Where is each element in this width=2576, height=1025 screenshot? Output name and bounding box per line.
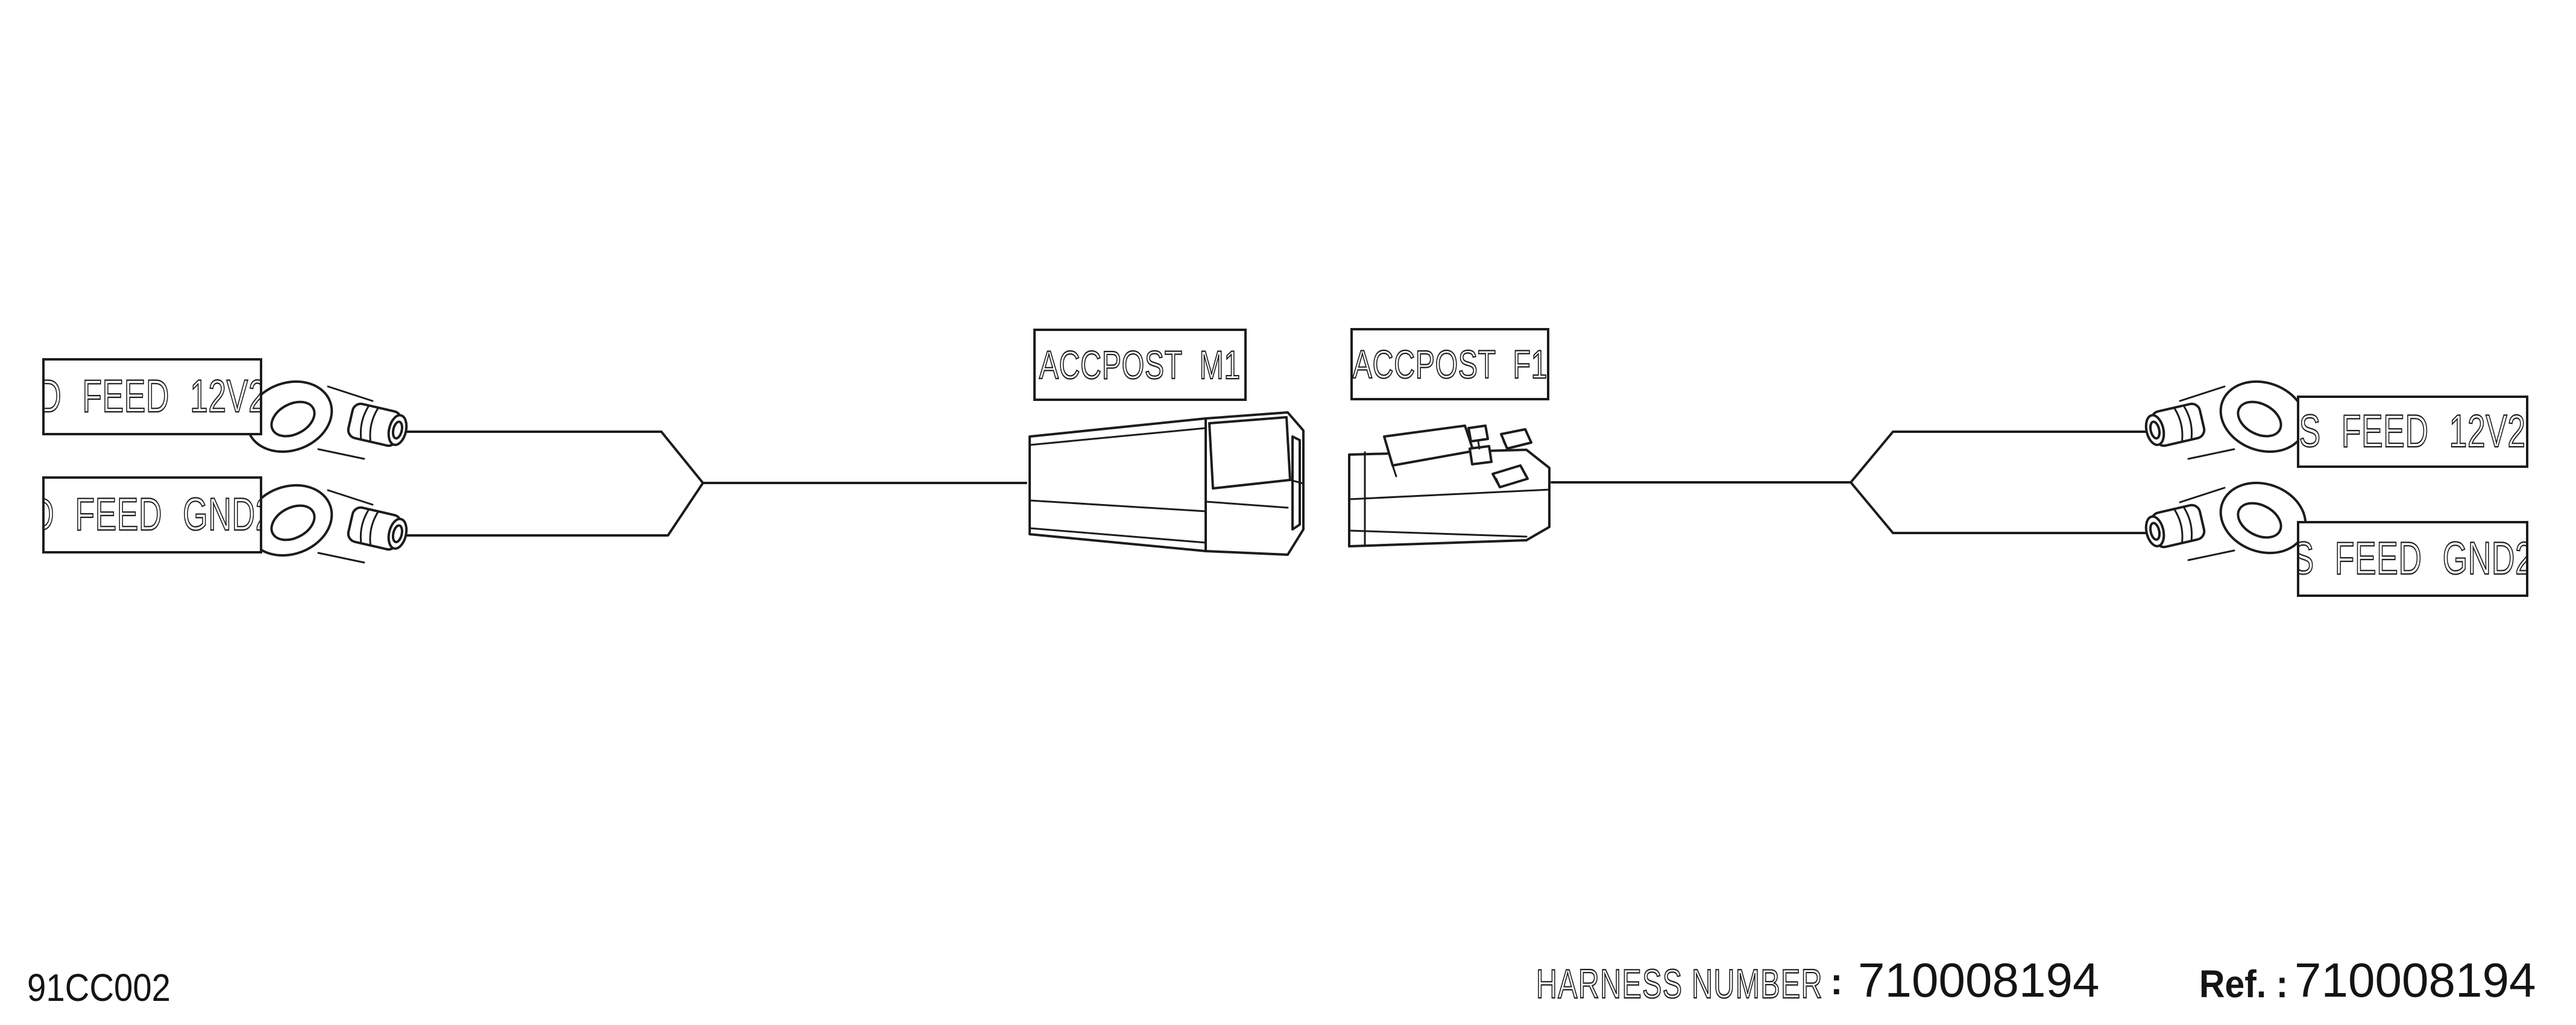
ring-terminal-d-feed-gnd2 [237, 474, 409, 567]
label-d-feed-12v2-text: D FEED 12V2 [42, 374, 262, 420]
label-box-accpost-f1: ACCPOST F1 [1350, 328, 1549, 400]
connector-f1-drawing [1349, 426, 1549, 546]
left-wire-12v2 [405, 432, 1026, 483]
left-wire-gnd2 [405, 483, 703, 535]
harness-number-label: HARNESS NUMBER [1536, 963, 1823, 1004]
label-box-s-feed-gnd2: S FEED GND2 [2297, 521, 2528, 597]
drawing-code: 91CC002 [27, 968, 171, 1007]
ring-terminal-s-feed-gnd2 [2143, 471, 2315, 564]
label-box-s-feed-12v2: S FEED 12V2 [2297, 396, 2528, 468]
label-s-feed-12v2-text: S FEED 12V2 [2299, 409, 2526, 455]
label-accpost-m1-text: ACCPOST M1 [1039, 345, 1241, 385]
label-s-feed-gnd2-text: S FEED GND2 [2297, 536, 2528, 582]
harness-number-colon: : [1830, 963, 1843, 1001]
harness-number-value: 710008194 [1858, 956, 2099, 1004]
label-accpost-f1-text: ACCPOST F1 [1352, 344, 1547, 384]
connector-m1-drawing [1030, 412, 1303, 555]
label-d-feed-gnd2-text: D FEED GND2 [42, 492, 262, 538]
right-wire-gnd2 [1851, 482, 2149, 533]
ring-terminal-s-feed-12v2 [2143, 370, 2315, 463]
label-box-d-feed-12v2: D FEED 12V2 [42, 358, 262, 435]
harness-diagram-canvas: D FEED 12V2 D FEED GND2 ACCPOST M1 ACCPO… [0, 0, 2576, 1025]
ref-value: 710008194 [2294, 956, 2536, 1004]
label-box-d-feed-gnd2: D FEED GND2 [42, 476, 262, 553]
ref-label: Ref. : [2199, 965, 2288, 1003]
label-box-accpost-m1: ACCPOST M1 [1033, 329, 1247, 401]
harness-artwork-svg [0, 0, 2576, 1025]
ring-terminal-d-feed-12v2 [237, 370, 409, 463]
right-wire-12v2 [1851, 432, 2149, 482]
